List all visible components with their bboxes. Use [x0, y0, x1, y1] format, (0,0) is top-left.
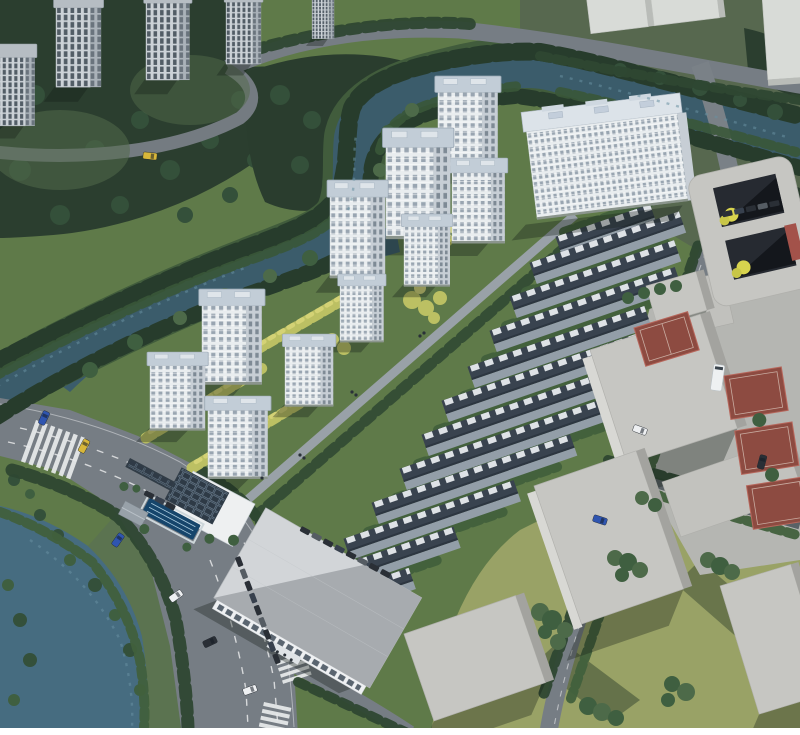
image-border: [0, 728, 800, 735]
context-tower: [0, 44, 37, 139]
court: [746, 477, 800, 530]
car: [143, 152, 158, 160]
aerial-rendering: [0, 0, 800, 735]
court: [724, 367, 788, 420]
court: [735, 422, 799, 475]
rendering-canvas: [0, 0, 800, 735]
